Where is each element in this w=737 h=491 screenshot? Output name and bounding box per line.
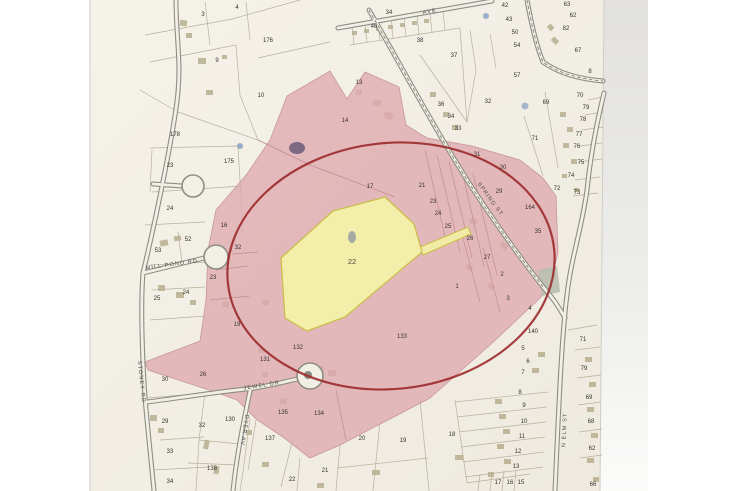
lot-number: 82 (563, 26, 570, 32)
lot-number: 34 (167, 479, 174, 485)
lot-number: 36 (438, 102, 445, 108)
lot-number: 24 (183, 290, 190, 296)
lot-number: 23 (430, 199, 437, 205)
lot-number: 50 (512, 30, 519, 36)
lot-number: 17 (495, 480, 502, 486)
lot-number: 10 (258, 93, 265, 99)
lot-number: 24 (167, 206, 174, 212)
lot-number: 138 (207, 466, 218, 472)
lot-number: 13 (513, 464, 520, 470)
lot-number: 33 (455, 126, 462, 132)
lot-number: 25 (154, 296, 161, 302)
lot-number: 74 (568, 173, 575, 179)
screenshot: MILL POND RD STONEY RD JEWEL DR DYER AV … (0, 0, 737, 491)
lot-number: 32 (485, 99, 492, 105)
lot-number: 17 (367, 184, 374, 190)
lot-number: 12 (515, 449, 522, 455)
lot-number: 71 (532, 136, 539, 142)
lot-number: 21 (419, 183, 426, 189)
lot-number: 178 (170, 132, 181, 138)
lot-number: 29 (162, 419, 169, 425)
lot-number: 35 (535, 229, 542, 235)
purple-blob (289, 142, 305, 154)
lot-number: 69 (586, 395, 593, 401)
lot-number: 67 (575, 48, 582, 54)
lot-number: 54 (514, 43, 521, 49)
lot-number: 23 (167, 163, 174, 169)
lot-number: 27 (484, 255, 491, 261)
lot-number: 133 (397, 334, 408, 340)
lot-number: 30 (162, 377, 169, 383)
lot-number: 134 (314, 411, 325, 417)
lot-number: 29 (496, 189, 503, 195)
lot-number: 15 (518, 480, 525, 486)
lot-number: 42 (502, 3, 509, 9)
lot-number: 175 (224, 159, 235, 165)
lot-number: 137 (265, 436, 276, 442)
lot-number: 69 (543, 100, 550, 106)
lot-number: 52 (185, 237, 192, 243)
lot-number: 176 (263, 38, 274, 44)
lot-number: 78 (580, 117, 587, 123)
lot-number: 22 (289, 477, 296, 483)
lot-number-yellow-parcel: 22 (348, 257, 356, 266)
lot-number: 34 (386, 10, 393, 16)
lot-number: 19 (400, 438, 407, 444)
lot-number: 13 (356, 80, 363, 86)
lot-number: 75 (578, 160, 585, 166)
lot-number: 19 (234, 322, 241, 328)
lot-number: 32 (199, 423, 206, 429)
lot-number: 23 (210, 275, 217, 281)
lot-number: 33 (167, 449, 174, 455)
lot-number: 70 (577, 93, 584, 99)
lot-number: 16 (507, 480, 514, 486)
lot-number: 25 (445, 224, 452, 230)
lot-number: 76 (574, 144, 581, 150)
lot-number: 26 (467, 236, 474, 242)
lot-number: 140 (528, 329, 539, 335)
lot-number: 62 (589, 446, 596, 452)
cul-de-sac-mill-pond (204, 245, 228, 269)
lot-number: 72 (554, 186, 561, 192)
lot-number: 34 (448, 114, 455, 120)
lot-number: 40 (371, 24, 378, 30)
lot-number: 164 (525, 205, 536, 211)
cul-de-sac-stub (182, 175, 204, 197)
lot-number: 62 (570, 13, 577, 19)
lot-number: 73 (574, 190, 581, 196)
lot-number: 43 (506, 17, 513, 23)
lot-number: 16 (221, 223, 228, 229)
lot-number: 131 (260, 357, 271, 363)
lot-number: 130 (225, 417, 236, 423)
lot-number: 38 (417, 38, 424, 44)
lot-number: 24 (435, 211, 442, 217)
lot-number: 11 (519, 434, 526, 440)
lot-number: 14 (342, 118, 349, 124)
lot-number: 31 (474, 152, 481, 158)
lot-number: 77 (576, 132, 583, 138)
lot-number: 53 (155, 248, 162, 254)
lot-number: 37 (451, 53, 458, 59)
lot-number: 68 (588, 419, 595, 425)
lot-number: 57 (514, 73, 521, 79)
lot-number: 21 (322, 468, 329, 474)
lot-number: 63 (564, 2, 571, 8)
lot-number: 30 (500, 165, 507, 171)
lot-number: 79 (583, 105, 590, 111)
lot-number: 26 (200, 372, 207, 378)
lot-number: 71 (580, 337, 587, 343)
lot-number: 10 (521, 419, 528, 425)
lot-number: 135 (278, 410, 289, 416)
lot-number: 132 (293, 345, 304, 351)
lot-number: 32 (235, 245, 242, 251)
lot-number: 18 (449, 432, 456, 438)
lot-number: 20 (359, 436, 366, 442)
lot-number: 66 (590, 482, 597, 488)
lot-number: 79 (581, 366, 588, 372)
pond-smudge (348, 231, 356, 243)
parcel-map-photo: MILL POND RD STONEY RD JEWEL DR DYER AV … (0, 0, 737, 491)
